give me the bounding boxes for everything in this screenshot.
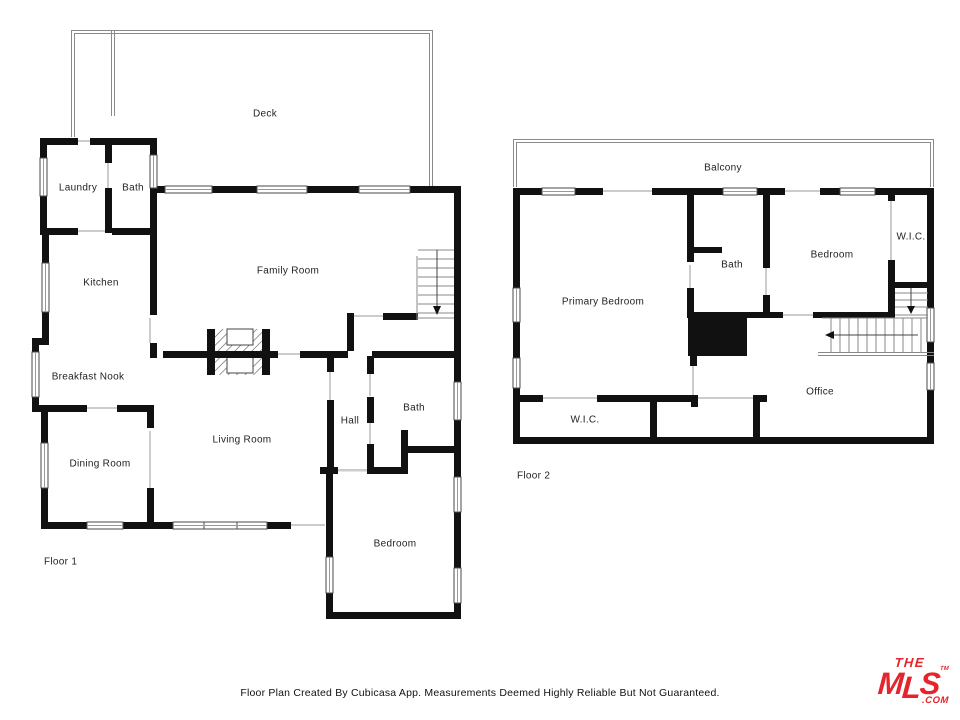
floor1-plan bbox=[32, 30, 461, 619]
floor2-door-openings bbox=[543, 191, 891, 398]
room-label-dining-room: Dining Room bbox=[69, 459, 130, 470]
disclaimer-text: Floor Plan Created By Cubicasa App. Meas… bbox=[0, 687, 960, 699]
deck-railing-icon bbox=[72, 30, 433, 187]
room-label-bedroom-f2: Bedroom bbox=[811, 250, 854, 261]
room-label-bath-f2: Bath bbox=[721, 260, 743, 271]
room-label-kitchen: Kitchen bbox=[83, 278, 118, 289]
floorplan-canvas: Deck Laundry Bath Kitchen Family Room Br… bbox=[0, 0, 960, 720]
floorplan-drawing bbox=[0, 0, 960, 720]
room-label-balcony: Balcony bbox=[704, 163, 742, 174]
floor2-plan bbox=[513, 140, 934, 445]
fireplace-icon bbox=[207, 329, 270, 375]
room-label-wic-lower: W.I.C. bbox=[570, 415, 599, 426]
floor2-label: Floor 2 bbox=[517, 471, 550, 482]
floor1-stairs-icon bbox=[417, 250, 454, 320]
floor2-window-lines bbox=[517, 192, 931, 391]
chimney-icon bbox=[688, 315, 747, 356]
logo-trademark: TM bbox=[940, 666, 949, 672]
room-label-family-room: Family Room bbox=[257, 266, 319, 277]
floor2-upper-stairs-icon bbox=[895, 288, 928, 315]
logo-mls-text: MLSTM bbox=[877, 668, 953, 699]
room-label-office: Office bbox=[806, 387, 834, 398]
logo-letter-s: S bbox=[919, 666, 941, 701]
room-label-wic-upper: W.I.C. bbox=[896, 232, 925, 243]
floor1-label: Floor 1 bbox=[44, 557, 77, 568]
logo-letter-m: M bbox=[877, 666, 904, 701]
floor2-walls bbox=[513, 188, 934, 444]
room-label-laundry: Laundry bbox=[59, 183, 97, 194]
room-label-hall: Hall bbox=[341, 416, 359, 427]
room-label-breakfast-nook: Breakfast Nook bbox=[52, 372, 125, 383]
room-label-primary-bedroom: Primary Bedroom bbox=[562, 297, 644, 308]
room-label-bath-lower-f1: Bath bbox=[403, 403, 425, 414]
themls-logo: THE MLSTM .COM bbox=[876, 656, 954, 712]
room-label-bath-upper-f1: Bath bbox=[122, 183, 144, 194]
floor2-main-stairs-icon bbox=[818, 318, 934, 356]
room-label-bedroom-f1: Bedroom bbox=[374, 539, 417, 550]
room-label-living-room: Living Room bbox=[213, 435, 272, 446]
room-label-deck: Deck bbox=[253, 109, 277, 120]
logo-letter-l: L bbox=[901, 670, 921, 705]
floor2-windows bbox=[513, 188, 934, 390]
